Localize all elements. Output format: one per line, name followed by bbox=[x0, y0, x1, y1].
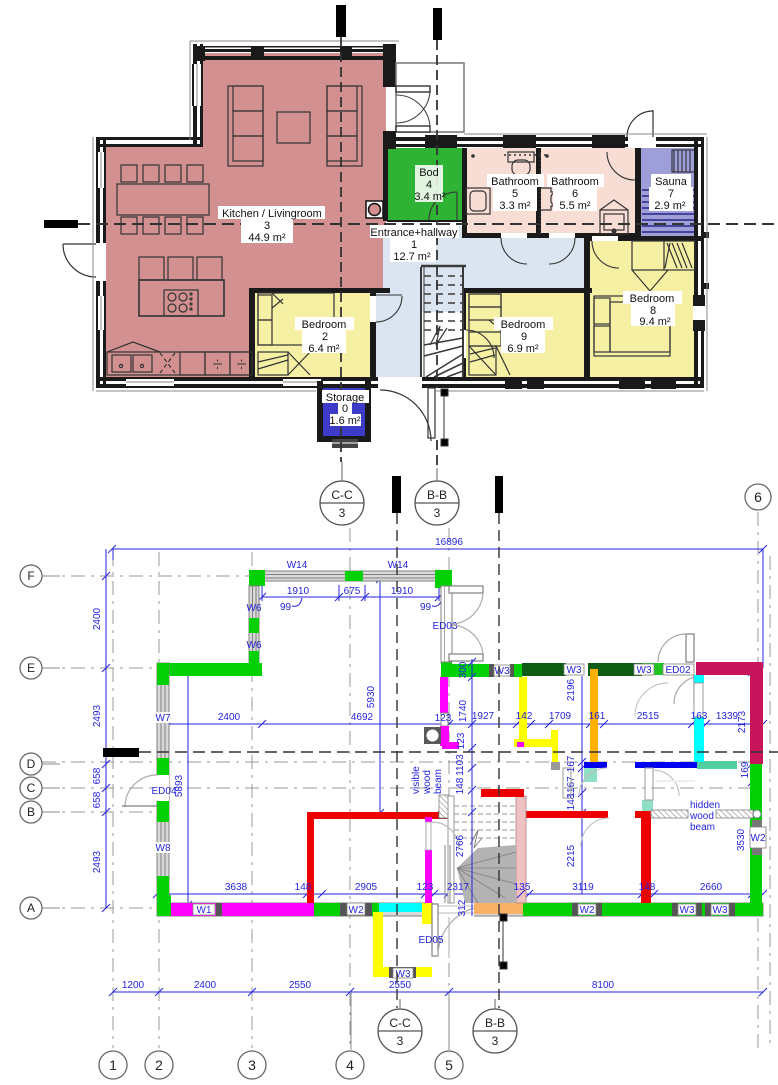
svg-text:W6: W6 bbox=[247, 640, 262, 651]
svg-text:Bathroom: Bathroom bbox=[491, 176, 539, 188]
svg-text:ED04: ED04 bbox=[151, 786, 176, 797]
svg-text:1910: 1910 bbox=[391, 586, 414, 597]
svg-text:2196: 2196 bbox=[566, 678, 577, 701]
svg-text:148: 148 bbox=[455, 777, 466, 794]
svg-text:1.6 m²: 1.6 m² bbox=[329, 415, 361, 427]
svg-text:5.5 m²: 5.5 m² bbox=[559, 200, 591, 212]
svg-text:W2: W2 bbox=[349, 905, 364, 916]
svg-text:Bedroom: Bedroom bbox=[501, 319, 546, 331]
svg-text:6: 6 bbox=[754, 489, 762, 505]
svg-text:W2: W2 bbox=[580, 905, 595, 916]
svg-text:135: 135 bbox=[514, 882, 531, 893]
svg-text:12.7 m²: 12.7 m² bbox=[393, 251, 431, 263]
svg-text:ED03: ED03 bbox=[432, 621, 457, 632]
svg-text:9: 9 bbox=[521, 331, 527, 343]
svg-text:658: 658 bbox=[92, 767, 103, 784]
svg-text:Bedroom: Bedroom bbox=[302, 319, 347, 331]
svg-text:W3: W3 bbox=[567, 665, 582, 676]
svg-text:W14: W14 bbox=[287, 560, 308, 571]
svg-text:A: A bbox=[27, 901, 35, 915]
svg-text:4: 4 bbox=[346, 1057, 354, 1073]
svg-text:beam: beam bbox=[433, 769, 444, 794]
svg-text:3: 3 bbox=[397, 1034, 404, 1048]
svg-text:C: C bbox=[27, 781, 36, 795]
svg-text:4692: 4692 bbox=[351, 712, 374, 723]
svg-text:2: 2 bbox=[322, 331, 328, 343]
svg-text:312: 312 bbox=[457, 899, 468, 916]
svg-text:3: 3 bbox=[492, 1034, 499, 1048]
svg-text:W3: W3 bbox=[396, 969, 411, 980]
svg-text:C-C: C-C bbox=[331, 488, 353, 502]
svg-text:W8: W8 bbox=[156, 843, 171, 854]
svg-text:163: 163 bbox=[691, 711, 708, 722]
svg-text:W3: W3 bbox=[713, 905, 728, 916]
svg-text:3119: 3119 bbox=[572, 882, 594, 893]
svg-text:W3: W3 bbox=[637, 665, 652, 676]
svg-text:2.9 m²: 2.9 m² bbox=[654, 200, 686, 212]
svg-text:Sauna: Sauna bbox=[655, 176, 688, 188]
svg-text:123: 123 bbox=[435, 713, 452, 724]
svg-text:hidden: hidden bbox=[690, 800, 720, 811]
svg-text:Bedroom: Bedroom bbox=[630, 293, 675, 305]
svg-text:W2: W2 bbox=[751, 833, 766, 844]
svg-text:3: 3 bbox=[434, 506, 441, 520]
svg-text:2550: 2550 bbox=[289, 980, 312, 991]
svg-text:675: 675 bbox=[344, 586, 361, 597]
svg-text:2173: 2173 bbox=[737, 710, 748, 733]
svg-text:300: 300 bbox=[458, 661, 469, 678]
svg-text:3.3 m²: 3.3 m² bbox=[499, 200, 531, 212]
svg-text:1910: 1910 bbox=[287, 586, 310, 597]
svg-text:W3: W3 bbox=[495, 666, 510, 677]
svg-text:99: 99 bbox=[280, 602, 292, 613]
svg-text:123: 123 bbox=[456, 732, 467, 749]
svg-text:148: 148 bbox=[295, 882, 312, 893]
svg-text:W7: W7 bbox=[156, 713, 171, 724]
svg-text:3.4 m²: 3.4 m² bbox=[414, 191, 446, 203]
svg-text:2: 2 bbox=[155, 1057, 163, 1073]
svg-text:5930: 5930 bbox=[366, 685, 377, 708]
svg-text:2660: 2660 bbox=[700, 882, 723, 893]
svg-text:7: 7 bbox=[668, 188, 674, 200]
svg-text:2905: 2905 bbox=[355, 882, 378, 893]
svg-text:1: 1 bbox=[411, 239, 417, 251]
svg-text:Bathroom: Bathroom bbox=[551, 176, 599, 188]
svg-text:5: 5 bbox=[445, 1057, 453, 1073]
svg-text:16896: 16896 bbox=[435, 537, 463, 548]
svg-text:Entrance+hallway: Entrance+hallway bbox=[370, 227, 458, 239]
svg-text:wood: wood bbox=[689, 811, 714, 822]
svg-text:F: F bbox=[27, 569, 34, 583]
svg-text:3638: 3638 bbox=[225, 882, 248, 893]
svg-text:B: B bbox=[27, 805, 35, 819]
svg-text:3: 3 bbox=[264, 220, 270, 232]
svg-text:0: 0 bbox=[342, 403, 348, 415]
svg-text:2550: 2550 bbox=[389, 980, 412, 991]
svg-text:2515: 2515 bbox=[637, 711, 660, 722]
svg-text:ED02: ED02 bbox=[665, 665, 690, 676]
svg-text:W14: W14 bbox=[388, 560, 409, 571]
svg-text:123: 123 bbox=[417, 882, 434, 893]
svg-text:2400: 2400 bbox=[92, 607, 103, 630]
svg-text:9.4 m²: 9.4 m² bbox=[639, 316, 671, 328]
svg-text:6: 6 bbox=[572, 188, 578, 200]
svg-text:5: 5 bbox=[512, 188, 518, 200]
svg-text:2493: 2493 bbox=[92, 704, 103, 727]
svg-text:ED05: ED05 bbox=[418, 935, 443, 946]
svg-text:142: 142 bbox=[516, 711, 533, 722]
svg-text:2400: 2400 bbox=[194, 980, 217, 991]
svg-text:169: 169 bbox=[740, 761, 751, 778]
svg-text:6.4 m²: 6.4 m² bbox=[308, 343, 340, 355]
svg-text:44.9 m²: 44.9 m² bbox=[248, 232, 286, 244]
svg-text:Kitchen / Livingroom: Kitchen / Livingroom bbox=[222, 208, 322, 220]
svg-text:B-B: B-B bbox=[485, 1016, 505, 1030]
svg-text:148: 148 bbox=[639, 882, 656, 893]
svg-text:6.9 m²: 6.9 m² bbox=[507, 343, 539, 355]
svg-text:2215: 2215 bbox=[566, 844, 577, 867]
svg-text:wood: wood bbox=[422, 770, 433, 795]
svg-text:4: 4 bbox=[426, 179, 432, 191]
svg-text:161: 161 bbox=[589, 711, 606, 722]
svg-text:beam: beam bbox=[690, 822, 715, 833]
svg-text:1200: 1200 bbox=[122, 980, 145, 991]
svg-text:W6: W6 bbox=[247, 603, 262, 614]
svg-text:8100: 8100 bbox=[592, 980, 615, 991]
svg-text:3: 3 bbox=[248, 1057, 256, 1073]
svg-text:B-B: B-B bbox=[427, 488, 447, 502]
svg-text:2766: 2766 bbox=[455, 834, 466, 857]
svg-text:W1: W1 bbox=[197, 905, 212, 916]
svg-text:2493: 2493 bbox=[92, 850, 103, 873]
svg-text:3: 3 bbox=[339, 506, 346, 520]
svg-text:C-C: C-C bbox=[389, 1016, 411, 1030]
svg-text:2400: 2400 bbox=[218, 712, 241, 723]
svg-text:1103: 1103 bbox=[455, 754, 466, 776]
svg-text:1740: 1740 bbox=[458, 699, 469, 722]
svg-text:1339: 1339 bbox=[716, 711, 739, 722]
svg-text:3530: 3530 bbox=[736, 828, 747, 851]
svg-text:1: 1 bbox=[109, 1057, 117, 1073]
svg-text:Bod: Bod bbox=[419, 167, 439, 179]
svg-text:1709: 1709 bbox=[549, 711, 572, 722]
svg-text:2317: 2317 bbox=[447, 882, 470, 893]
svg-text:D: D bbox=[27, 757, 36, 771]
svg-text:W3: W3 bbox=[680, 905, 695, 916]
svg-text:visible: visible bbox=[411, 766, 422, 794]
svg-text:99: 99 bbox=[420, 602, 432, 613]
svg-text:1927: 1927 bbox=[472, 711, 495, 722]
svg-text:E: E bbox=[27, 661, 35, 675]
svg-text:658: 658 bbox=[92, 791, 103, 808]
